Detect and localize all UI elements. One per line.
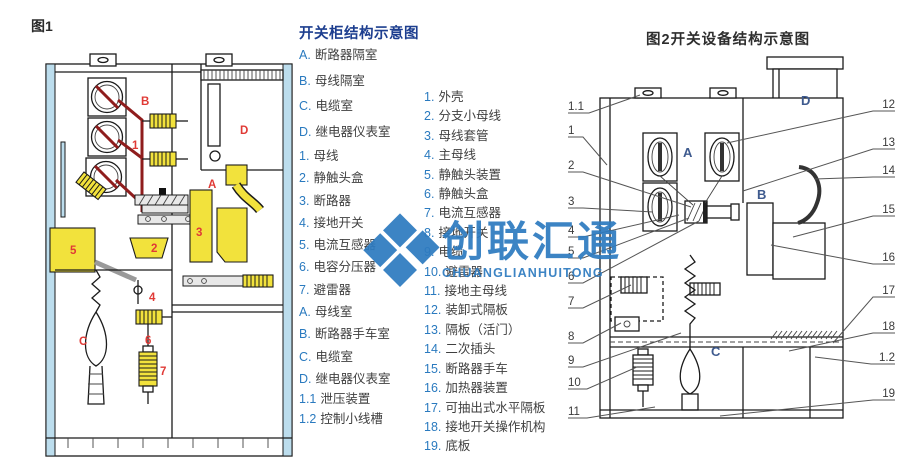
legend-label: 断路器 (313, 194, 351, 208)
legend-label: 母线 (313, 149, 338, 163)
legend-key: 16. (424, 381, 441, 395)
legend-item: 1.2控制小线槽 (299, 410, 425, 430)
legend-label: 电缆室 (316, 350, 354, 364)
fig1-lifting-lug (90, 54, 116, 66)
legend-key: B. (299, 74, 311, 88)
legend-label: 加热器装置 (445, 381, 508, 395)
legend-item: B.母线隔室 (299, 69, 425, 95)
legend-item: 5.静触头装置 (424, 166, 584, 185)
svg-text:13: 13 (882, 137, 895, 149)
legend-key: 1. (299, 149, 309, 163)
legend-item: 11.接地主母线 (424, 282, 584, 301)
legend-item: 3.母线套管 (424, 127, 584, 146)
watermark-logo-icon (360, 213, 439, 292)
legend-label: 电容分压器 (313, 260, 376, 274)
legend-key: 14. (424, 342, 441, 356)
legend-item: 3.断路器 (299, 190, 425, 212)
legend-key: 4. (299, 216, 309, 230)
legend-item: 2.静触头盒 (299, 167, 425, 189)
legend-label: 继电器仪表室 (316, 372, 391, 386)
legend-item: 1.1泄压装置 (299, 390, 425, 410)
legend-key: 1. (424, 90, 434, 104)
svg-text:1: 1 (568, 125, 574, 137)
svg-text:D: D (801, 93, 810, 108)
center-legend-title: 开关柜结构示意图 (299, 22, 425, 43)
legend-item: 18.接地开关操作机构 (424, 418, 584, 437)
legend-label: 断路器隔室 (315, 48, 378, 62)
svg-text:10: 10 (568, 377, 581, 389)
svg-text:2: 2 (151, 243, 157, 255)
legend-item: 17.可抽出式水平隔板 (424, 399, 584, 418)
legend-label: 泄压装置 (320, 392, 370, 406)
legend-label: 主母线 (438, 148, 476, 162)
fig2-lifting-lug (635, 88, 661, 98)
legend-key: 11. (424, 284, 440, 298)
legend-extra: 1.1泄压装置 1.2控制小线槽 (299, 390, 425, 429)
legend-item: 16.加热器装置 (424, 379, 584, 398)
legend-key: 5. (424, 168, 434, 182)
legend-item: D.继电器仪表室 (299, 120, 425, 146)
legend-label: 可抽出式水平隔板 (445, 401, 545, 415)
legend-key: D. (299, 372, 312, 386)
fig1-lifting-lug (206, 54, 232, 66)
legend-label: 外壳 (438, 90, 463, 104)
legend-item: 15.断路器手车 (424, 360, 584, 379)
legend-item: C.电缆室 (299, 94, 425, 120)
legend-key: 2. (424, 109, 434, 123)
figure1-diagram: B 1 D A 5 2 3 4 C 6 7 (38, 52, 296, 464)
legend-key: 3. (424, 129, 434, 143)
legend-label: 母线室 (315, 305, 353, 319)
fig2-lifting-lug (710, 88, 736, 98)
legend-label: 隔板（活门） (445, 323, 520, 337)
legend-label: 接地开关操作机构 (445, 420, 545, 434)
fig1-right-panel (283, 64, 292, 456)
svg-text:7: 7 (568, 296, 574, 308)
legend-item: 1.母线 (299, 145, 425, 167)
legend-key: A. (299, 48, 311, 62)
fig2-ct-coil (621, 277, 647, 293)
svg-text:4: 4 (149, 292, 156, 304)
legend-key: 15. (424, 362, 441, 376)
svg-text:1.1: 1.1 (568, 101, 584, 113)
legend-label: 断路器手车室 (315, 327, 390, 341)
figure1-caption: 图1 (31, 16, 53, 36)
legend-label: 静触头盒 (313, 171, 363, 185)
watermark-en: CHUANGLIANHUITONG (442, 266, 622, 280)
legend-label: 装卸式隔板 (445, 303, 508, 317)
svg-text:5: 5 (70, 245, 77, 257)
svg-text:C: C (711, 344, 721, 359)
svg-text:7: 7 (160, 366, 166, 378)
legend-item: 12.装卸式隔板 (424, 301, 584, 320)
legend-key: 6. (424, 187, 434, 201)
svg-text:B: B (141, 96, 149, 108)
legend-key: 7. (299, 283, 309, 297)
fig1-side-rod (61, 142, 65, 217)
page: 图1 图2开关设备结构示意图 (0, 0, 900, 474)
svg-text:C: C (79, 336, 87, 348)
svg-text:17: 17 (882, 285, 895, 297)
svg-text:9: 9 (568, 355, 574, 367)
legend-rooms1: A.断路器隔室 B.母线隔室 C.电缆室 D.继电器仪表室 (299, 43, 425, 145)
legend-label: 静触头盒 (438, 187, 488, 201)
legend-item: A.母线室 (299, 301, 425, 323)
svg-text:2: 2 (568, 160, 574, 172)
legend-key: 18. (424, 420, 441, 434)
watermark-text: 创联汇通 CHUANGLIANHUITONG (442, 219, 622, 280)
svg-text:3: 3 (568, 196, 574, 208)
svg-text:14: 14 (882, 165, 895, 177)
legend-item: 13.隔板（活门） (424, 321, 584, 340)
svg-text:18: 18 (882, 321, 895, 333)
legend-key: 1.1 (299, 392, 316, 406)
legend-key: A. (299, 305, 311, 319)
legend-label: 底板 (445, 439, 470, 453)
legend-key: D. (299, 125, 312, 139)
legend-key: 1.2 (299, 412, 316, 426)
legend-item: 4.主母线 (424, 146, 584, 165)
svg-text:19: 19 (882, 388, 895, 400)
legend-key: C. (299, 99, 312, 113)
figure2-caption: 图2开关设备结构示意图 (646, 28, 810, 49)
legend-key: C. (299, 350, 312, 364)
svg-text:1.2: 1.2 (879, 352, 895, 364)
legend-key: B. (299, 327, 311, 341)
legend-item: 1.外壳 (424, 88, 584, 107)
legend-rooms2: A.母线室 B.断路器手车室 C.电缆室 D.继电器仪表室 (299, 301, 425, 390)
legend-item: 6.静触头盒 (424, 185, 584, 204)
legend-label: 电缆室 (316, 99, 354, 113)
svg-text:D: D (240, 125, 248, 137)
legend-label: 避雷器 (313, 283, 351, 297)
svg-text:A: A (683, 145, 693, 160)
legend-label: 分支小母线 (438, 109, 501, 123)
legend-label: 母线隔室 (315, 74, 365, 88)
legend-item: D.继电器仪表室 (299, 368, 425, 390)
legend-key: 19. (424, 439, 441, 453)
legend-key: 3. (299, 194, 309, 208)
svg-text:11: 11 (568, 406, 580, 418)
svg-text:16: 16 (882, 252, 895, 264)
legend-label: 接地开关 (313, 216, 363, 230)
legend-label: 控制小线槽 (320, 412, 383, 426)
legend-item: 19.底板 (424, 437, 584, 456)
legend-key: 6. (299, 260, 309, 274)
legend-label: 二次插头 (445, 342, 495, 356)
legend-key: 2. (299, 171, 309, 185)
legend-item: C.电缆室 (299, 346, 425, 368)
svg-text:6: 6 (145, 335, 151, 347)
svg-text:3: 3 (196, 227, 202, 239)
legend-key: 13. (424, 323, 441, 337)
svg-text:1: 1 (132, 140, 139, 152)
legend-item: 14.二次插头 (424, 340, 584, 359)
legend-key: 5. (299, 238, 309, 252)
legend-key: 12. (424, 303, 441, 317)
legend-item: A.断路器隔室 (299, 43, 425, 69)
watermark: 创联汇通 CHUANGLIANHUITONG (372, 219, 622, 281)
svg-text:12: 12 (882, 99, 895, 111)
svg-text:B: B (757, 187, 766, 202)
legend-item: B.断路器手车室 (299, 323, 425, 345)
legend-item: 2.分支小母线 (424, 107, 584, 126)
svg-text:15: 15 (882, 204, 895, 216)
legend-label: 继电器仪表室 (316, 125, 391, 139)
svg-text:8: 8 (568, 331, 574, 343)
legend-label: 静触头装置 (438, 168, 501, 182)
legend-label: 接地主母线 (444, 284, 507, 298)
fig1-part-2 (130, 238, 168, 258)
legend-label: 母线套管 (438, 129, 488, 143)
legend-key: 17. (424, 401, 441, 415)
legend-label: 断路器手车 (445, 362, 508, 376)
svg-text:A: A (208, 179, 216, 191)
legend-key: 4. (424, 148, 434, 162)
watermark-cn: 创联汇通 (442, 219, 622, 265)
